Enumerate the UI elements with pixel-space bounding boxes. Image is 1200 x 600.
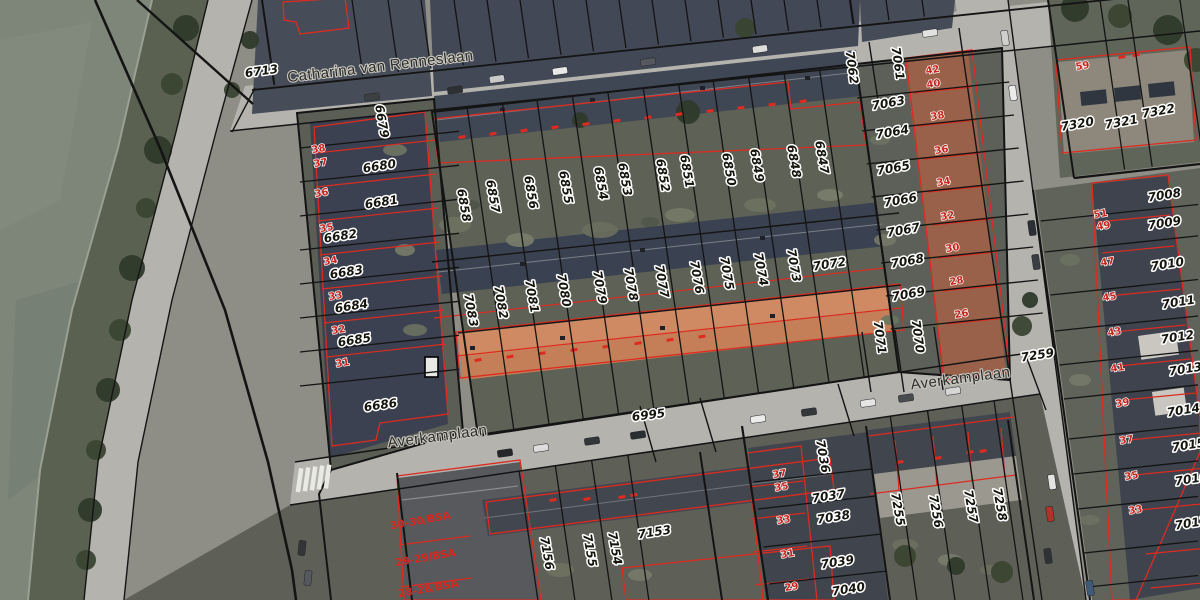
house-number-label: 37 xyxy=(1119,434,1135,447)
house-number-label: 34 xyxy=(323,255,339,268)
house-number-label: 37 xyxy=(772,468,788,481)
house-number-label: 28 xyxy=(949,275,965,288)
house-number-label: 35 xyxy=(319,222,335,235)
parked-car xyxy=(298,540,307,556)
house-number-label: 33 xyxy=(1128,504,1144,517)
house-number-label: 59 xyxy=(1075,60,1091,73)
house-number-label: 36 xyxy=(934,144,950,157)
house-number-label: 40 xyxy=(926,78,942,91)
house-number-label: 26 xyxy=(954,308,970,321)
house-number-label: 49 xyxy=(1096,220,1112,233)
house-number-label: 32 xyxy=(940,210,956,223)
house-number-label: 41 xyxy=(1110,362,1126,375)
house-number-label: 36 xyxy=(314,187,330,200)
house-number-label: 51 xyxy=(1093,208,1109,221)
house-number-label: 35 xyxy=(1124,470,1140,483)
house-number-label: 33 xyxy=(328,290,344,303)
house-number-label: 43 xyxy=(1107,326,1123,339)
cadastral-aerial-map[interactable]: Catharina van RenneslaanAverkamplaanAver… xyxy=(0,0,1200,600)
house-number-label: 32 xyxy=(331,324,347,337)
house-number-label: 35 xyxy=(774,481,790,494)
parked-car xyxy=(304,570,313,586)
house-number-label: 31 xyxy=(335,357,351,370)
house-number-label: 31 xyxy=(780,548,796,561)
house-number-label: 39 xyxy=(1115,397,1131,410)
house-number-label: 30 xyxy=(945,242,961,255)
house-number-label: 29 xyxy=(784,581,800,594)
house-number-label: 38 xyxy=(930,110,946,123)
house-number-label: 33 xyxy=(776,514,792,527)
house-number-label: 34 xyxy=(936,176,952,189)
map-viewport[interactable]: Catharina van RenneslaanAverkamplaanAver… xyxy=(0,0,1200,600)
house-number-label: 42 xyxy=(925,64,941,77)
house-number-label: 47 xyxy=(1100,256,1116,269)
house-number-label: 38 xyxy=(311,143,327,156)
house-number-label: 37 xyxy=(313,157,329,170)
house-number-label: 45 xyxy=(1102,291,1118,304)
